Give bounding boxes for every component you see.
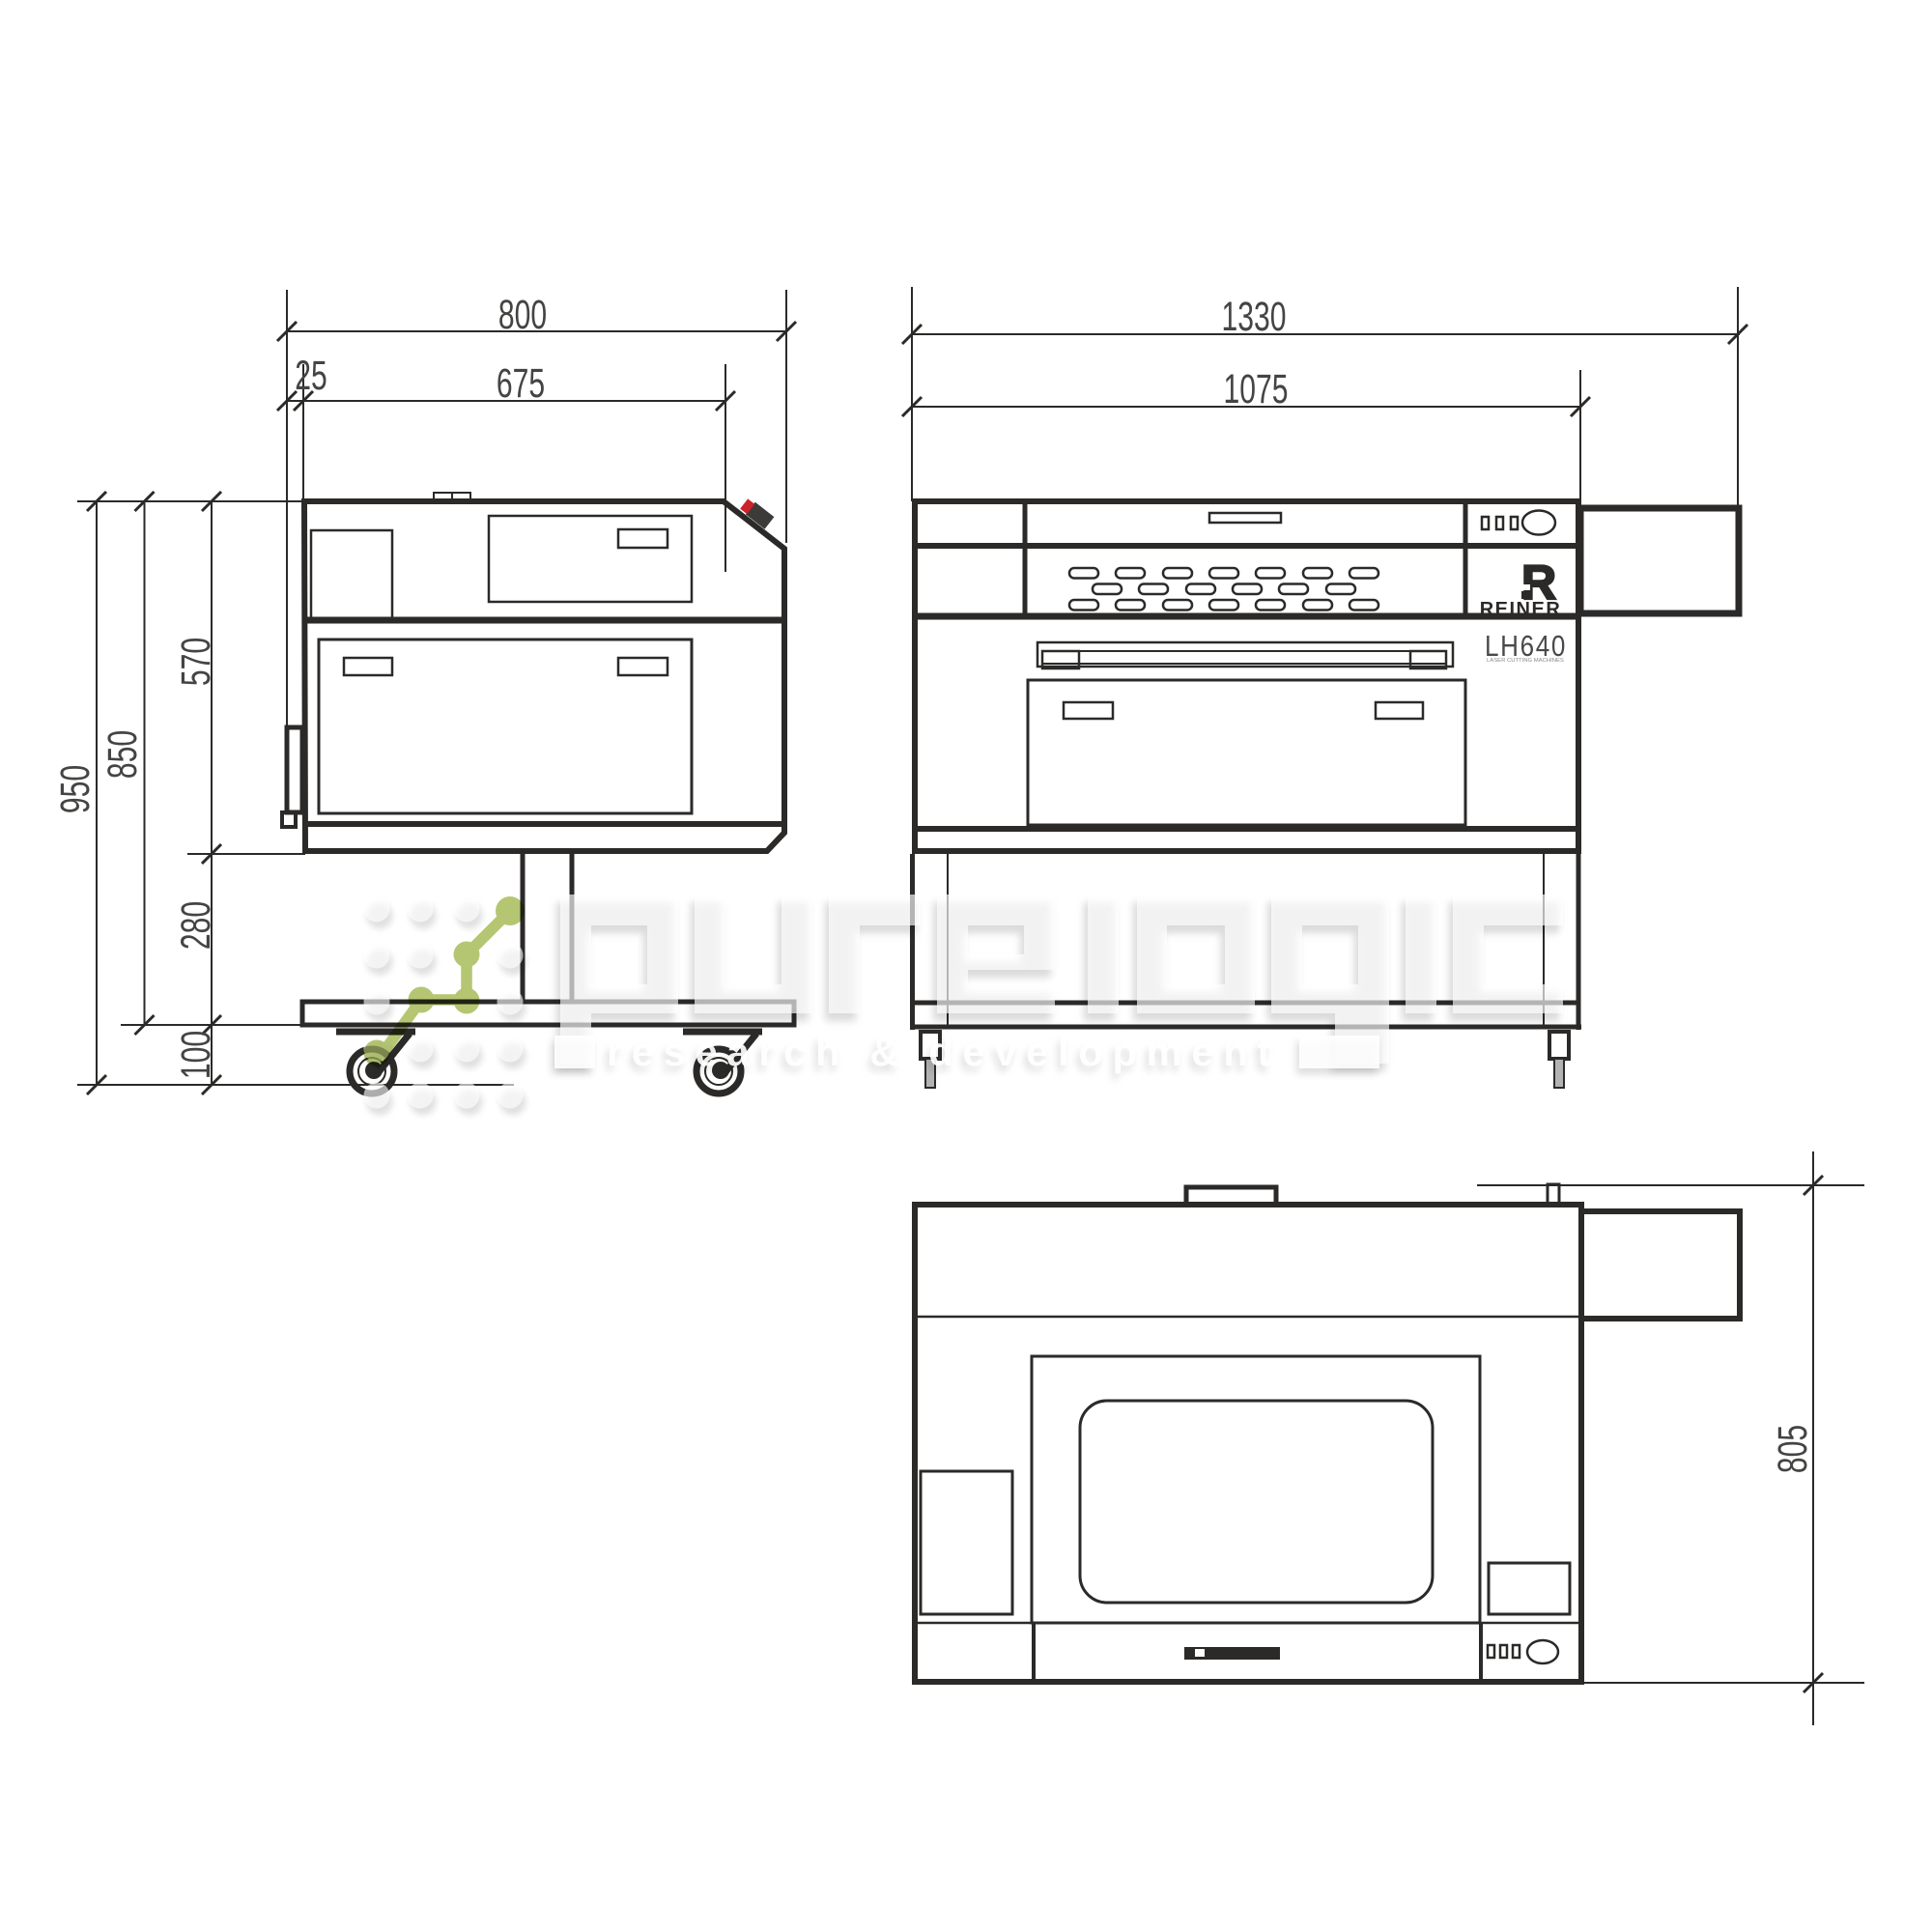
svg-text:805: 805 — [1769, 1425, 1816, 1473]
svg-text:570: 570 — [172, 638, 219, 686]
svg-text:REINER: REINER — [1480, 599, 1562, 620]
svg-text:280: 280 — [172, 901, 219, 950]
svg-text:675: 675 — [497, 359, 545, 407]
svg-text:850: 850 — [99, 730, 146, 779]
svg-text:LASER CUTTING MACHINES: LASER CUTTING MACHINES — [1487, 658, 1564, 664]
svg-text:100: 100 — [172, 1031, 219, 1079]
svg-text:950: 950 — [51, 765, 99, 813]
svg-text:800: 800 — [498, 291, 547, 338]
svg-text:research & development: research & development — [607, 1029, 1280, 1074]
svg-text:25: 25 — [295, 352, 327, 399]
svg-text:1330: 1330 — [1222, 293, 1287, 340]
svg-text:1075: 1075 — [1224, 365, 1289, 412]
